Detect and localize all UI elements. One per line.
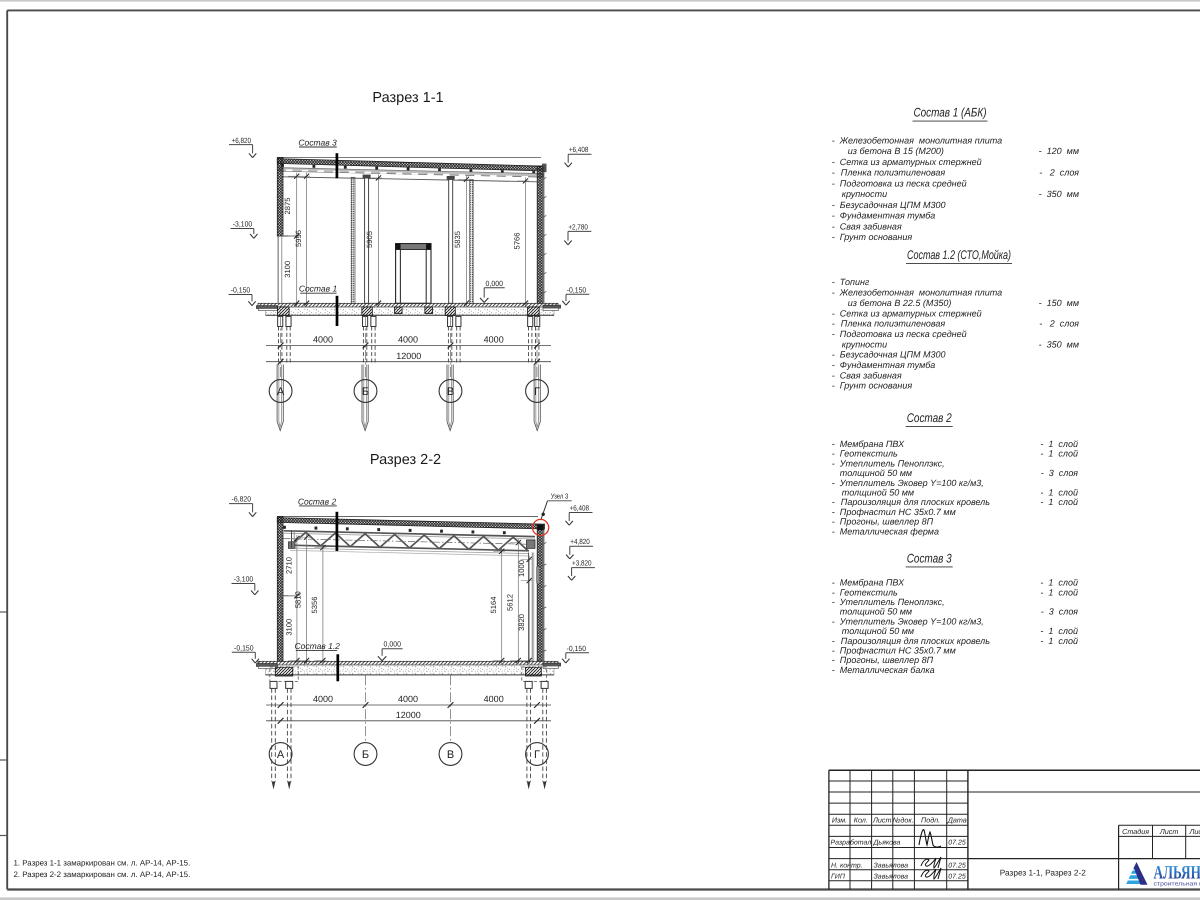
svg-text:0,000: 0,000 — [384, 640, 402, 649]
svg-text:Н. контр.: Н. контр. — [831, 862, 863, 869]
svg-text:-: - — [832, 211, 835, 221]
svg-text:+3,820: +3,820 — [572, 559, 592, 568]
svg-text:- 3 слоя: - 3 слоя — [1041, 468, 1078, 478]
svg-text:Узел 3: Узел 3 — [551, 491, 569, 500]
svg-text:- 120 мм: - 120 мм — [1039, 146, 1079, 156]
svg-text:-: - — [832, 655, 835, 665]
svg-text:1000: 1000 — [517, 560, 526, 577]
svg-text:Прогоны, швеллер 8П: Прогоны, швеллер 8П — [840, 655, 934, 665]
svg-text:Грунт основания: Грунт основания — [840, 232, 913, 242]
svg-text:3100: 3100 — [284, 619, 293, 636]
svg-text:- 150 мм: - 150 мм — [1039, 298, 1079, 308]
svg-text:- 2 слоя: - 2 слоя — [1039, 319, 1079, 329]
svg-text:5612: 5612 — [506, 594, 515, 611]
svg-text:-0,150: -0,150 — [231, 286, 251, 295]
svg-text:Состав 3: Состав 3 — [907, 551, 952, 565]
svg-text:-: - — [832, 578, 835, 588]
svg-text:-: - — [832, 221, 835, 231]
svg-text:-: - — [832, 360, 835, 370]
svg-text:-: - — [832, 381, 835, 391]
svg-text:- 1 слой: - 1 слой — [1040, 578, 1078, 588]
svg-text:Утеплитель Эковер Y=100 кг/м3,: Утеплитель Эковер Y=100 кг/м3, — [839, 616, 984, 626]
svg-text:Завьялова: Завьялова — [874, 873, 909, 880]
svg-text:2710: 2710 — [284, 557, 293, 574]
svg-text:строительная компания: строительная компания — [1154, 882, 1200, 888]
svg-text:-: - — [832, 616, 835, 626]
svg-text:- 350 мм: - 350 мм — [1039, 339, 1079, 349]
svg-text:№док.: №док. — [893, 816, 914, 825]
svg-text:-: - — [832, 517, 835, 527]
svg-text:Подп.: Подп. — [921, 816, 940, 825]
svg-text:1. Разрез 1-1 замаркирован см.: 1. Разрез 1-1 замаркирован см. л. АР-14,… — [14, 859, 191, 868]
svg-text:- 3 слоя: - 3 слоя — [1041, 607, 1078, 617]
svg-text:+6,408: +6,408 — [569, 145, 589, 154]
svg-text:Мембрана ПВХ: Мембрана ПВХ — [840, 578, 905, 588]
svg-text:Прогоны, швеллер 8П: Прогоны, швеллер 8П — [840, 517, 934, 527]
svg-text:-: - — [832, 597, 835, 607]
svg-text:- 1 слой: - 1 слой — [1040, 439, 1078, 449]
svg-text:Пленка полиэтиленовая: Пленка полиэтиленовая — [841, 319, 946, 329]
svg-text:Свая забивная: Свая забивная — [840, 221, 902, 231]
svg-text:-: - — [832, 665, 835, 675]
svg-text:+4,820: +4,820 — [570, 537, 590, 546]
svg-text:Разрез 1-1, Разрез 2-2: Разрез 1-1, Разрез 2-2 — [1000, 868, 1086, 878]
svg-text:Геотекстиль: Геотекстиль — [840, 587, 898, 597]
svg-text:Лист: Лист — [1189, 827, 1200, 836]
svg-text:Разрез 1-1: Разрез 1-1 — [372, 90, 443, 106]
svg-text:Утеплитель Эковер Y=100 кг/м3,: Утеплитель Эковер Y=100 кг/м3, — [839, 478, 984, 488]
svg-text:4000: 4000 — [398, 335, 418, 345]
svg-text:ГИП: ГИП — [831, 873, 846, 880]
svg-text:толщиной 50 мм: толщиной 50 мм — [840, 468, 912, 478]
svg-text:Безусадочная ЦПМ М300: Безусадочная ЦПМ М300 — [840, 350, 946, 360]
svg-text:Завьялова: Завьялова — [874, 862, 909, 869]
svg-text:5905: 5905 — [365, 231, 374, 248]
svg-text:4000: 4000 — [484, 694, 504, 704]
svg-text:Г: Г — [534, 749, 540, 761]
svg-text:-6,820: -6,820 — [232, 495, 252, 504]
svg-text:-: - — [832, 478, 835, 488]
svg-text:4000: 4000 — [313, 694, 333, 704]
svg-text:-0,150: -0,150 — [234, 643, 254, 652]
svg-text:4000: 4000 — [313, 335, 333, 345]
svg-text:Сетка из арматурных стержней: Сетка из арматурных стержней — [840, 308, 982, 318]
svg-text:4000: 4000 — [398, 694, 418, 704]
svg-text:толщиной 50 мм: толщиной 50 мм — [842, 488, 914, 498]
svg-text:Лист: Лист — [872, 816, 892, 825]
svg-text:из бетона В 15 (М200): из бетона В 15 (М200) — [848, 146, 944, 156]
svg-text:-: - — [832, 157, 835, 167]
svg-text:-: - — [832, 636, 835, 646]
svg-text:крупности: крупности — [842, 189, 887, 199]
svg-text:- 1 слой: - 1 слой — [1040, 488, 1078, 498]
svg-text:-: - — [832, 168, 835, 178]
svg-text:-: - — [832, 288, 835, 298]
svg-text:Пленка полиэтиленовая: Пленка полиэтиленовая — [841, 168, 946, 178]
svg-text:-: - — [832, 439, 835, 449]
svg-text:-: - — [832, 200, 835, 210]
svg-text:-: - — [832, 526, 835, 536]
svg-text:- 1 слой: - 1 слой — [1040, 497, 1078, 507]
svg-text:Стадия: Стадия — [1122, 827, 1149, 836]
svg-text:3100: 3100 — [283, 261, 292, 278]
svg-text:5835: 5835 — [453, 231, 462, 248]
svg-text:толщиной 50 мм: толщиной 50 мм — [840, 607, 912, 617]
svg-text:-: - — [832, 507, 835, 517]
svg-text:Б: Б — [362, 386, 369, 398]
svg-text:Металлическая балка: Металлическая балка — [840, 665, 935, 675]
svg-text:-: - — [832, 178, 835, 188]
svg-text:Профнастил НС 35х0.7 мм: Профнастил НС 35х0.7 мм — [840, 646, 956, 656]
svg-text:- 1 слой: - 1 слой — [1040, 449, 1078, 459]
svg-text:Профнастил НС 35х0.7 мм: Профнастил НС 35х0.7 мм — [840, 507, 956, 517]
svg-text:Пароизоляция для плоских крове: Пароизоляция для плоских кровель — [841, 497, 990, 507]
svg-text:Утеплитель Пеноплэкс,: Утеплитель Пеноплэкс, — [839, 597, 945, 607]
svg-text:Состав 1.2 (СТО,Мойка): Состав 1.2 (СТО,Мойка) — [907, 248, 1011, 262]
svg-text:Состав 2: Состав 2 — [298, 496, 337, 506]
svg-text:-: - — [832, 646, 835, 656]
svg-text:2. Разрез 2-2 замаркирован см.: 2. Разрез 2-2 замаркирован см. л. АР-14,… — [14, 870, 191, 879]
svg-text:5810: 5810 — [294, 591, 303, 608]
svg-text:-0,150: -0,150 — [567, 286, 587, 295]
svg-text:07.25: 07.25 — [948, 862, 966, 869]
svg-text:из бетона В 22.5 (М350): из бетона В 22.5 (М350) — [848, 298, 952, 308]
svg-text:Сетка из арматурных стержней: Сетка из арматурных стержней — [840, 157, 982, 167]
svg-text:3820: 3820 — [517, 614, 526, 631]
svg-text:Фундаментная тумба: Фундаментная тумба — [840, 211, 936, 221]
svg-text:Изм.: Изм. — [832, 816, 847, 825]
svg-text:Разработал: Разработал — [831, 839, 872, 847]
svg-text:Железобетонная монолитная пли: Железобетонная монолитная плита — [839, 288, 1002, 298]
svg-text:Топинг: Топинг — [840, 277, 870, 287]
svg-text:Лист: Лист — [1159, 827, 1179, 836]
svg-text:-: - — [832, 319, 835, 329]
svg-text:- 1 слой: - 1 слой — [1040, 636, 1078, 646]
svg-text:А: А — [277, 386, 285, 398]
svg-text:Состав 2: Состав 2 — [907, 411, 952, 425]
svg-text:-: - — [832, 232, 835, 242]
svg-text:Грунт основания: Грунт основания — [840, 381, 913, 391]
svg-text:А: А — [277, 749, 285, 761]
svg-text:Геотекстиль: Геотекстиль — [840, 449, 898, 459]
svg-text:0,000: 0,000 — [486, 279, 504, 288]
svg-text:Металлическая ферма: Металлическая ферма — [840, 526, 939, 536]
svg-text:Состав 3: Состав 3 — [298, 138, 337, 148]
svg-text:Подготовка из песка средней: Подготовка из песка средней — [840, 329, 967, 339]
svg-text:-: - — [832, 135, 835, 145]
svg-text:+6,820: +6,820 — [232, 136, 252, 145]
svg-text:- 350 мм: - 350 мм — [1039, 189, 1079, 199]
svg-text:-: - — [832, 277, 835, 287]
svg-text:АЛЬЯНС: АЛЬЯНС — [1154, 863, 1200, 884]
svg-text:Фундаментная тумба: Фундаментная тумба — [840, 360, 936, 370]
svg-text:Свая забивная: Свая забивная — [840, 370, 902, 380]
svg-text:12000: 12000 — [396, 351, 421, 361]
svg-text:5766: 5766 — [512, 233, 521, 250]
svg-text:Железобетонная монолитная пли: Железобетонная монолитная плита — [839, 135, 1002, 145]
svg-text:-3,100: -3,100 — [233, 219, 253, 228]
svg-text:Б: Б — [362, 749, 369, 761]
svg-text:крупности: крупности — [842, 339, 887, 349]
svg-text:-: - — [832, 497, 835, 507]
svg-text:Утеплитель Пеноплэкс,: Утеплитель Пеноплэкс, — [839, 458, 945, 468]
svg-text:+2,780: +2,780 — [568, 223, 588, 232]
svg-text:5356: 5356 — [310, 597, 319, 614]
svg-text:-: - — [832, 587, 835, 597]
svg-text:-: - — [832, 449, 835, 459]
svg-text:Состав 1.2: Состав 1.2 — [294, 641, 340, 651]
svg-text:- 1 слой: - 1 слой — [1040, 626, 1078, 636]
svg-text:В: В — [447, 386, 454, 398]
svg-text:Подготовка из песка средней: Подготовка из песка средней — [840, 178, 967, 188]
svg-text:4000: 4000 — [484, 335, 504, 345]
svg-text:-0,150: -0,150 — [567, 644, 587, 653]
svg-text:-: - — [832, 458, 835, 468]
svg-text:Кол.: Кол. — [854, 816, 868, 825]
svg-text:Безусадочная ЦПМ М300: Безусадочная ЦПМ М300 — [840, 200, 946, 210]
svg-text:07.25: 07.25 — [948, 873, 966, 880]
svg-text:2875: 2875 — [283, 198, 292, 215]
svg-text:Состав 1 (АБК): Состав 1 (АБК) — [914, 106, 987, 120]
svg-text:07.25: 07.25 — [948, 840, 966, 847]
svg-text:Дата: Дата — [947, 816, 967, 825]
svg-text:+6,408: +6,408 — [570, 504, 590, 513]
svg-text:-: - — [832, 350, 835, 360]
svg-text:Разрез 2-2: Разрез 2-2 — [370, 452, 441, 468]
svg-text:В: В — [447, 749, 454, 761]
svg-text:-: - — [832, 329, 835, 339]
svg-text:-3,100: -3,100 — [234, 575, 254, 584]
svg-text:-: - — [832, 370, 835, 380]
svg-text:Мембрана ПВХ: Мембрана ПВХ — [840, 439, 905, 449]
svg-text:- 2 слоя: - 2 слоя — [1039, 168, 1079, 178]
svg-text:Состав 1: Состав 1 — [299, 283, 338, 293]
svg-text:Дьякова: Дьякова — [873, 840, 901, 847]
svg-text:толщиной 50 мм: толщиной 50 мм — [842, 626, 914, 636]
svg-text:- 1 слой: - 1 слой — [1040, 587, 1078, 597]
svg-text:Пароизоляция для плоских крове: Пароизоляция для плоских кровель — [841, 636, 990, 646]
svg-text:Г: Г — [534, 386, 540, 398]
svg-text:5955: 5955 — [294, 230, 303, 247]
svg-text:-: - — [832, 308, 835, 318]
svg-text:12000: 12000 — [396, 710, 421, 720]
svg-text:5164: 5164 — [489, 597, 498, 614]
